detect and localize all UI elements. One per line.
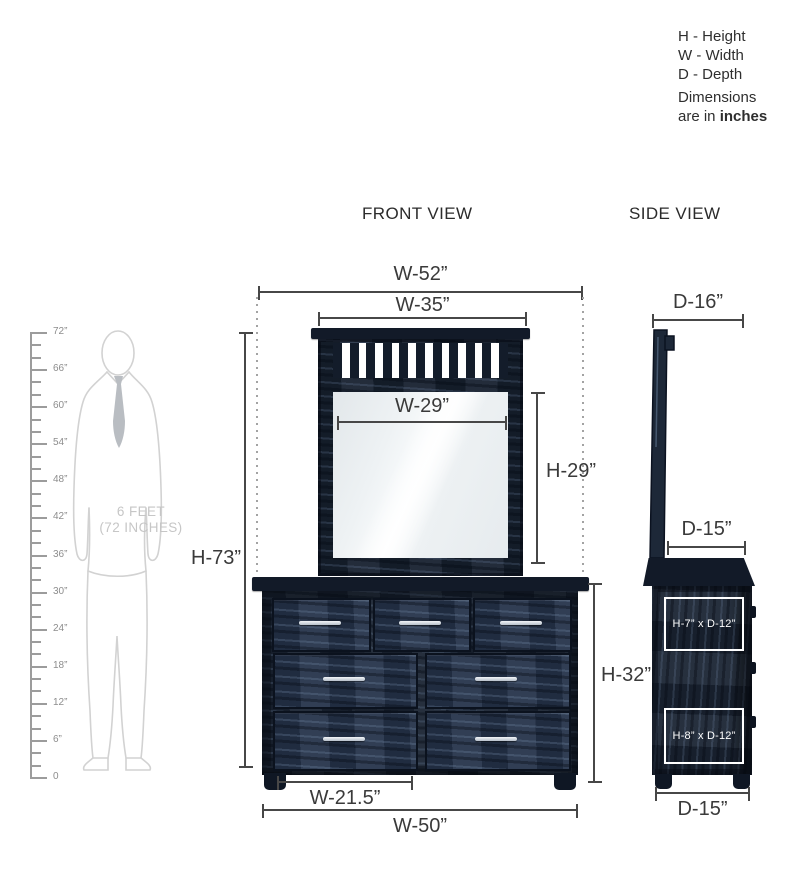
legend-note-line2: are in inches — [678, 107, 767, 126]
ruler-tick — [32, 629, 47, 631]
human-figure-silhouette — [58, 325, 203, 777]
ruler-tick — [32, 369, 47, 371]
mirror-slat — [366, 343, 375, 378]
legend-height: H - Height — [678, 27, 767, 46]
dim-top-depth-label: D-15” — [667, 518, 746, 541]
ruler-tick — [32, 777, 47, 779]
ruler-tick — [32, 517, 47, 519]
side-drawer-pull — [750, 606, 756, 618]
drawer-bottom-right — [425, 711, 571, 771]
figure-caption-line2: (72 INCHES) — [86, 520, 196, 536]
ruler-tick — [32, 394, 41, 396]
drawer-middle-right — [425, 653, 571, 709]
ruler-tick — [32, 419, 41, 421]
ruler-tick — [32, 752, 41, 754]
ruler-tick — [32, 493, 41, 495]
dim-overall-width-label: W-52” — [258, 263, 583, 286]
dim-glass-height-line — [536, 392, 538, 564]
side-drawer-pull — [750, 662, 756, 674]
dim-dresser-height-label: H-32” — [601, 664, 651, 687]
dim-mirror-depth-label: D-16” — [652, 291, 744, 314]
ruler-tick — [32, 456, 41, 458]
dim-glass-width-line — [337, 421, 507, 423]
mirror-slat — [482, 343, 491, 378]
ruler-tick — [32, 678, 41, 680]
dim-drawer-width-label: W-21.5” — [277, 787, 413, 810]
dim-dresser-height-line — [593, 583, 595, 783]
dresser-leg-right — [554, 773, 576, 790]
drawer-top-left — [272, 598, 371, 652]
dim-dresser-width-label: W-50” — [262, 815, 578, 838]
ruler-tick — [32, 406, 47, 408]
dim-base-depth-line — [655, 792, 750, 794]
drawer-top-right — [473, 598, 572, 652]
drawer-handle — [323, 677, 365, 681]
dimension-diagram: H - Height W - Width D - Depth Dimension… — [0, 0, 800, 880]
ruler-tick — [32, 728, 41, 730]
dim-overall-width-line — [258, 291, 583, 293]
legend: H - Height W - Width D - Depth Dimension… — [678, 27, 767, 126]
ruler-tick — [32, 666, 47, 668]
mirror-slat — [433, 343, 442, 378]
ruler-tick — [32, 567, 41, 569]
upper-drawer-size-box: H-7” x D-12” — [664, 597, 744, 651]
mirror-frame — [318, 339, 523, 576]
extension-line-right — [582, 297, 584, 575]
ruler-tick — [32, 703, 47, 705]
mirror-slat — [383, 343, 392, 378]
ruler-tick — [32, 641, 41, 643]
mirror-slat — [350, 343, 359, 378]
ruler-tick — [32, 530, 41, 532]
extension-line-left — [256, 297, 258, 575]
mirror-slat — [333, 343, 342, 378]
drawer-handle — [475, 737, 517, 741]
ruler-tick — [32, 357, 41, 359]
dim-dresser-width-line — [262, 809, 578, 811]
ruler-tick — [32, 443, 47, 445]
drawer-handle — [500, 621, 542, 625]
side-view-title: SIDE VIEW — [629, 204, 720, 224]
legend-note-normal: are in — [678, 108, 720, 125]
drawer-handle — [299, 621, 341, 625]
side-leg-front — [655, 774, 672, 789]
legend-width: W - Width — [678, 46, 767, 65]
ruler-tick — [32, 765, 41, 767]
ruler-tick — [32, 555, 47, 557]
drawer-handle — [475, 677, 517, 681]
mirror-slat — [499, 343, 508, 378]
ruler-tick — [32, 740, 47, 742]
dim-overall-height-line — [244, 332, 246, 768]
dim-mirror-width-line — [318, 317, 527, 319]
ruler-tick — [32, 468, 41, 470]
mirror-top-cap — [311, 328, 530, 339]
mirror-slat — [399, 343, 408, 378]
legend-note-bold: inches — [720, 108, 768, 125]
dim-mirror-width-label: W-35” — [318, 294, 527, 317]
side-cabinet-top — [643, 558, 755, 586]
ruler-tick — [32, 592, 47, 594]
ruler-tick — [32, 616, 41, 618]
front-view-title: FRONT VIEW — [362, 204, 472, 224]
ruler-tick — [32, 579, 41, 581]
ruler-tick — [32, 690, 41, 692]
ruler-tick — [32, 431, 41, 433]
lower-drawer-size-box: H-8” x D-12” — [664, 708, 744, 764]
dim-mirror-depth-line — [652, 319, 744, 321]
dim-top-depth-line — [667, 546, 746, 548]
drawer-handle — [399, 621, 441, 625]
figure-tie — [113, 376, 125, 448]
drawer-handle — [323, 737, 365, 741]
figure-head — [102, 331, 134, 375]
ruler-tick — [32, 505, 41, 507]
mirror-slats — [333, 343, 508, 378]
legend-note-line1: Dimensions — [678, 88, 767, 107]
drawer-middle-left — [273, 653, 418, 709]
ruler-tick — [32, 604, 41, 606]
ruler-tick — [32, 542, 41, 544]
mirror-slat — [416, 343, 425, 378]
mirror-slat — [466, 343, 475, 378]
legend-depth: D - Depth — [678, 65, 767, 84]
figure-caption: 6 FEET (72 INCHES) — [86, 504, 196, 536]
drawer-top-center — [373, 598, 471, 652]
ruler-tick — [32, 715, 41, 717]
dim-drawer-width-line — [277, 781, 413, 783]
dresser-top — [252, 577, 589, 591]
dim-glass-width-label: W-29” — [337, 395, 507, 418]
figure-caption-line1: 6 FEET — [86, 504, 196, 520]
dim-glass-height-label: H-29” — [546, 460, 596, 483]
ruler-tick — [32, 381, 41, 383]
ruler-tick — [32, 344, 41, 346]
dim-overall-height-label: H-73” — [191, 547, 238, 570]
ruler-tick — [32, 653, 41, 655]
ruler-tick — [32, 332, 47, 334]
ruler-tick — [32, 480, 47, 482]
side-drawer-pull — [750, 716, 756, 728]
dim-base-depth-label: D-15” — [655, 798, 750, 821]
drawer-bottom-left — [273, 711, 418, 771]
mirror-slat — [449, 343, 458, 378]
